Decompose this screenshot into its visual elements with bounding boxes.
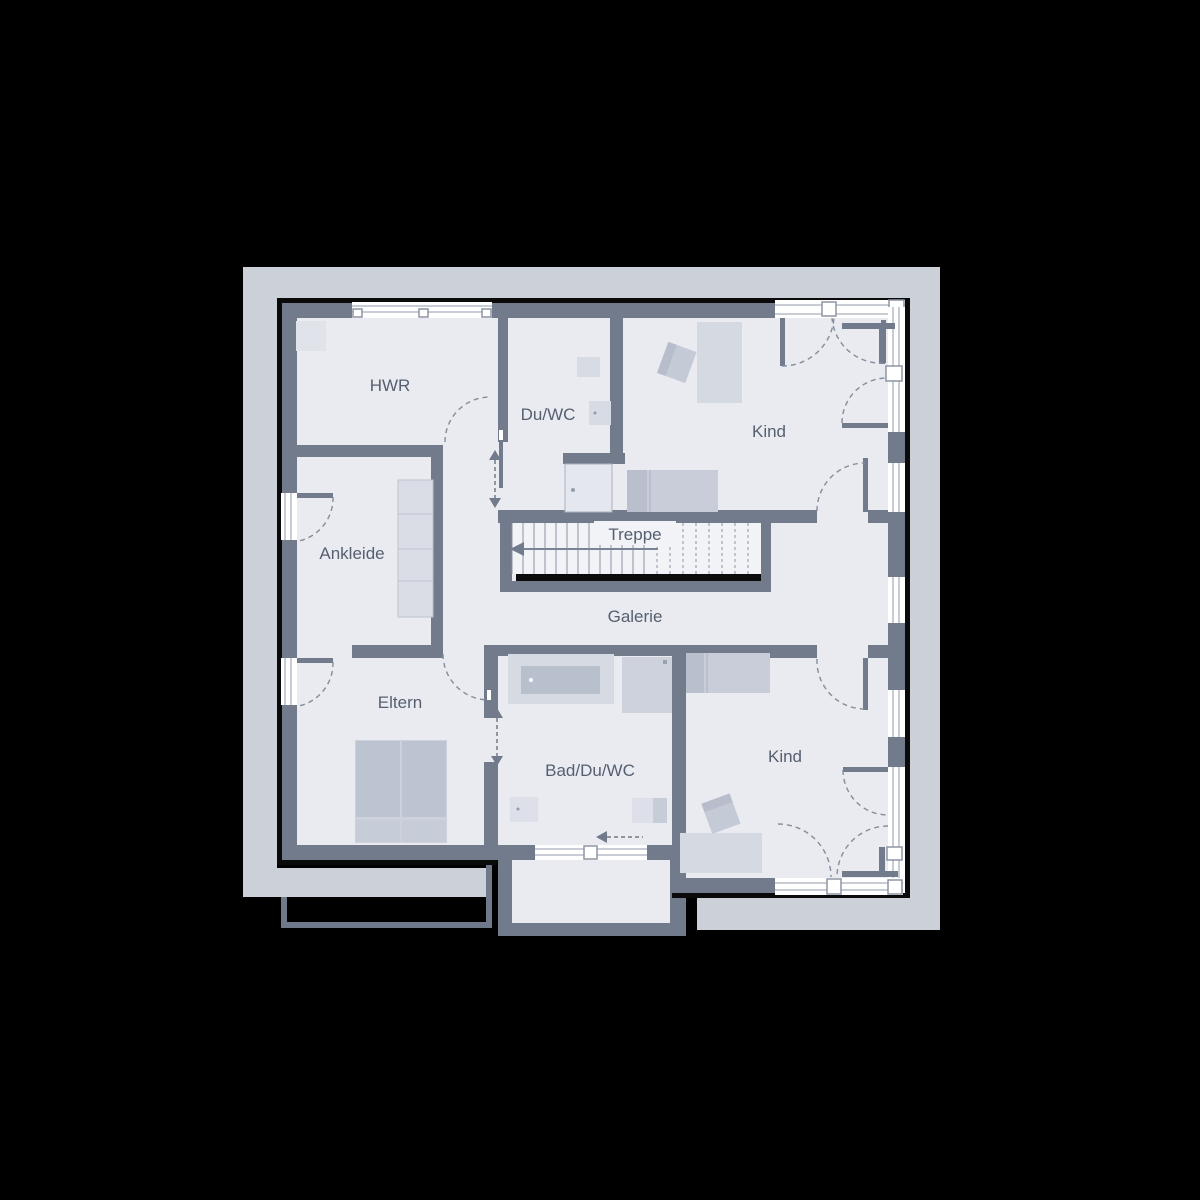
floorplan-page: HWR Du/WC Kind Ankleide Treppe Galerie E…	[0, 0, 1200, 1200]
bad-sink	[510, 797, 538, 822]
window-right-kind2-1	[888, 690, 905, 737]
window-bad-bottom	[535, 845, 647, 860]
room-label-hwr: HWR	[370, 376, 411, 395]
room-label-du-wc: Du/WC	[521, 405, 576, 424]
wall-pier-right-2	[888, 512, 905, 577]
window-kind2-bottom	[775, 878, 903, 895]
room-label-treppe: Treppe	[608, 525, 661, 544]
wall-duwc-right	[610, 303, 623, 458]
border-top	[243, 267, 940, 298]
wall-eltern-bottom	[282, 845, 497, 860]
bad-bathtub	[508, 654, 614, 704]
window-ankleide-left	[281, 493, 297, 540]
window-kind1-top	[775, 300, 905, 318]
wall-stair-right	[761, 523, 771, 590]
kind1-bed	[627, 470, 718, 512]
eltern-bed	[355, 740, 447, 843]
wall-stair-left	[500, 523, 512, 590]
duwc-shower	[565, 464, 612, 512]
room-label-bad-du-wc: Bad/Du/WC	[545, 761, 635, 780]
wall-pier-right-4	[888, 737, 905, 767]
kind1-desk	[697, 322, 742, 403]
window-eltern-left	[281, 658, 297, 705]
wall-duwc-left	[498, 303, 508, 442]
room-label-galerie: Galerie	[608, 607, 663, 626]
wall-ankleide-eltern	[352, 645, 443, 658]
wall-stair-bottom	[500, 581, 771, 592]
border-right	[910, 267, 940, 930]
bad-toilet	[632, 798, 667, 823]
hwr-shaft	[296, 321, 326, 351]
window-right-galerie-1	[888, 463, 905, 512]
duwc-sink	[577, 357, 600, 377]
window-right-galerie-2	[888, 577, 905, 623]
floorplan-svg: HWR Du/WC Kind Ankleide Treppe Galerie E…	[0, 0, 1200, 1200]
kind2-bed	[686, 653, 770, 693]
floor-balcony	[512, 860, 670, 923]
border-bottom-right	[697, 898, 940, 930]
ankleide-wardrobe	[398, 480, 433, 617]
wall-kind2-bottom	[672, 878, 775, 893]
wall-hwr-ankleide	[282, 445, 443, 457]
border-left	[243, 267, 277, 897]
room-label-kind-1: Kind	[752, 422, 786, 441]
wall-bad-window-right	[647, 845, 672, 860]
room-label-ankleide: Ankleide	[319, 544, 384, 563]
room-label-eltern: Eltern	[378, 693, 422, 712]
wall-pier-right-1	[888, 432, 905, 463]
wall-balcony-bottom	[498, 923, 684, 936]
wall-duwc-bottom	[563, 453, 625, 464]
border-bottom-left	[243, 868, 490, 897]
room-label-kind-2: Kind	[768, 747, 802, 766]
wall-balcony-left	[498, 845, 512, 936]
kind2-desk	[680, 833, 762, 873]
wall-eltern-bad-lower	[484, 762, 498, 860]
window-hwr-top	[352, 302, 492, 318]
wall-stub-kind2-door	[868, 645, 905, 658]
bad-shower	[622, 657, 672, 713]
wall-outer-left	[282, 303, 297, 860]
duwc-toilet	[589, 401, 611, 425]
stair-edge-bar	[516, 574, 761, 581]
wall-bad-window-left	[512, 845, 535, 860]
